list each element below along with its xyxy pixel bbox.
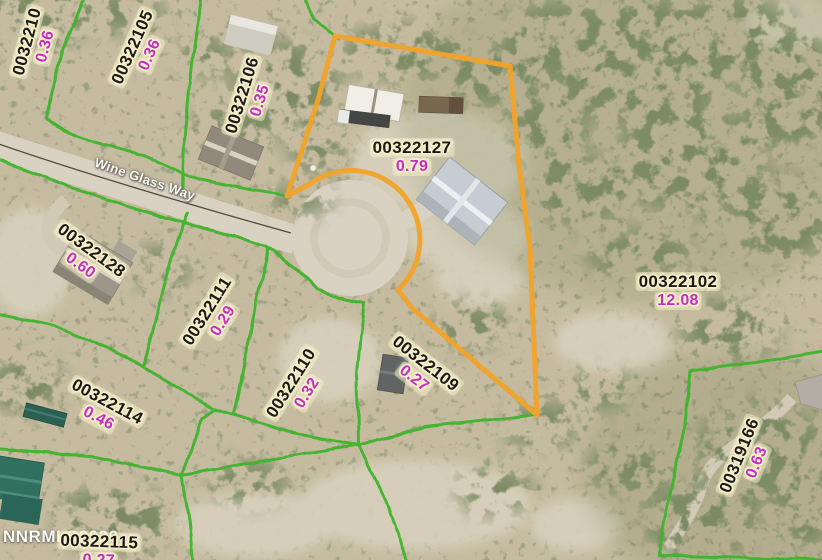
parcel-apn: 00322115 (57, 531, 142, 553)
small-object (310, 165, 316, 171)
outbuilding-brown (419, 96, 464, 114)
parcel-label-00322102[interactable]: 00322102 12.08 (636, 272, 721, 310)
parcel-acres: 12.08 (654, 292, 702, 310)
parcel-acres: 0.27 (79, 551, 118, 560)
parcel-label-00322115[interactable]: 00322115 0.27 (56, 531, 141, 560)
parcel-acres: 0.79 (393, 158, 431, 176)
parcel-apn: 00322102 (636, 272, 721, 291)
parcel-map-viewport[interactable]: NNRMLS2020 0032210 0.36 00322105 0.36 00… (0, 0, 822, 560)
parcel-apn: 00322127 (370, 138, 455, 157)
parcel-label-00322127-highlighted[interactable]: 00322127 0.79 (370, 138, 455, 176)
